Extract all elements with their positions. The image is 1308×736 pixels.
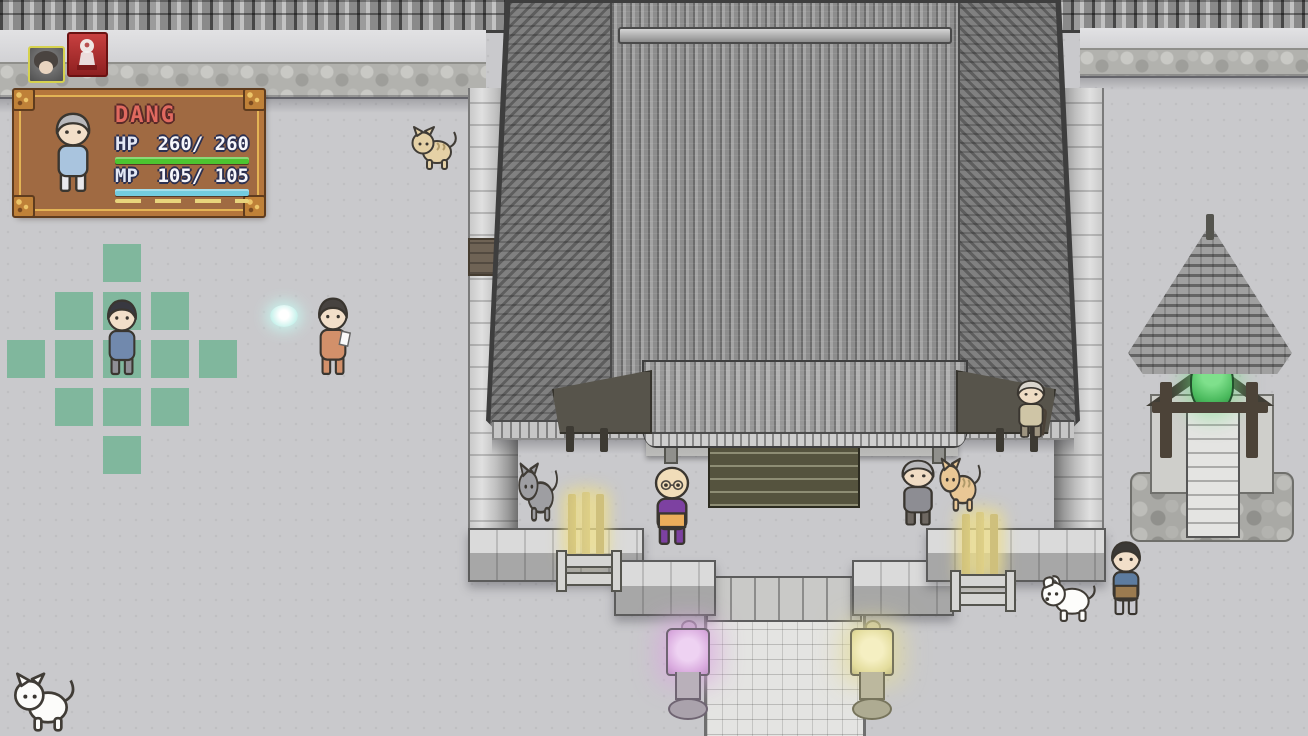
tp-gauge-empty bbox=[115, 199, 249, 203]
hp-bar-track bbox=[115, 157, 249, 164]
temple-entrance-steps[interactable] bbox=[708, 440, 860, 508]
move-tile[interactable] bbox=[55, 340, 93, 378]
incense-rack bbox=[954, 574, 1012, 588]
outer-wall-face-right bbox=[1080, 28, 1308, 48]
move-tile[interactable] bbox=[151, 340, 189, 378]
npc-old-man-cane[interactable] bbox=[1013, 376, 1049, 440]
incense-stick bbox=[976, 512, 984, 576]
cat-tan[interactable] bbox=[410, 119, 458, 171]
mp-value: 105/ 105 bbox=[149, 165, 249, 187]
stone-lantern-yellow[interactable] bbox=[848, 626, 894, 726]
lantern-foot bbox=[668, 698, 708, 720]
lantern-neck bbox=[675, 672, 701, 700]
praying-figure-glyph bbox=[69, 34, 106, 75]
lantern-light bbox=[666, 628, 710, 676]
incense-stick bbox=[582, 492, 590, 556]
move-tile[interactable] bbox=[103, 388, 141, 426]
panel-corner bbox=[12, 88, 35, 111]
mp-bar-track bbox=[115, 189, 249, 196]
portrait-face bbox=[39, 61, 53, 74]
temple-roof-ridge bbox=[618, 27, 952, 44]
incense-stick bbox=[990, 514, 998, 576]
incense-rack bbox=[954, 592, 1012, 606]
game-viewport: DANG HP 260/ 260 MP 105/ 105 bbox=[0, 0, 1308, 736]
lantern-neck bbox=[859, 672, 885, 700]
npc-old-woman[interactable] bbox=[897, 455, 939, 528]
move-tile[interactable] bbox=[7, 340, 45, 378]
temple-lower-roof bbox=[642, 360, 968, 448]
lantern-foot bbox=[852, 698, 892, 720]
bell-tower[interactable] bbox=[1128, 226, 1292, 542]
actor-name: DANG bbox=[115, 103, 176, 128]
incense-rack-post bbox=[950, 570, 961, 612]
player-character[interactable] bbox=[103, 294, 141, 378]
incense-stand-left[interactable] bbox=[560, 494, 618, 590]
incense-rack-post bbox=[556, 550, 567, 592]
wing-post-left-a bbox=[566, 426, 574, 452]
lantern-light bbox=[850, 628, 894, 676]
gate-steps[interactable] bbox=[706, 576, 862, 622]
wall-shadow-right bbox=[1080, 74, 1308, 90]
move-tile[interactable] bbox=[103, 244, 141, 282]
move-tile[interactable] bbox=[55, 292, 93, 330]
incense-stick bbox=[568, 494, 576, 556]
incense-rack bbox=[560, 572, 618, 586]
player-portrait-icon[interactable] bbox=[28, 46, 65, 83]
move-tile[interactable] bbox=[199, 340, 237, 378]
incense-stick bbox=[596, 494, 604, 556]
incense-stand-right[interactable] bbox=[954, 514, 1012, 610]
panel-corner bbox=[243, 88, 266, 111]
dog-white[interactable] bbox=[1040, 568, 1098, 622]
stone-lantern-purple[interactable] bbox=[664, 626, 710, 726]
bell-tower-roof bbox=[1128, 224, 1292, 374]
move-tile[interactable] bbox=[55, 388, 93, 426]
hud: DANG HP 260/ 260 MP 105/ 105 bbox=[0, 0, 300, 240]
incense-rack-post bbox=[611, 550, 622, 592]
bell-tower-steps[interactable] bbox=[1186, 410, 1240, 538]
incense-rack bbox=[560, 554, 618, 568]
temple-roof-hip-left bbox=[490, 3, 618, 432]
cat-white[interactable] bbox=[12, 663, 76, 733]
wing-post-right-b bbox=[996, 428, 1004, 452]
spirit-orb[interactable] bbox=[270, 305, 298, 327]
move-tile[interactable] bbox=[103, 436, 141, 474]
status-panel: DANG HP 260/ 260 MP 105/ 105 bbox=[14, 90, 264, 216]
front-wall-left-inner bbox=[614, 560, 716, 616]
hp-value: 260/ 260 bbox=[149, 133, 249, 155]
bell-tower-beam bbox=[1152, 402, 1268, 413]
npc-paper-visitor[interactable] bbox=[314, 292, 352, 378]
incense-stick bbox=[962, 514, 970, 576]
hp-bar-fill bbox=[115, 157, 249, 164]
bell-tower-post-left bbox=[1160, 382, 1172, 458]
mp-bar-fill bbox=[115, 189, 249, 196]
entrance-brick-path[interactable] bbox=[704, 614, 866, 736]
hp-label: HP bbox=[115, 133, 138, 155]
bell-tower-post-right bbox=[1246, 382, 1258, 458]
move-tile[interactable] bbox=[151, 292, 189, 330]
cat-gray[interactable] bbox=[517, 453, 559, 523]
spirit-marker-icon[interactable] bbox=[67, 32, 108, 77]
mp-label: MP bbox=[115, 165, 138, 187]
wing-post-left-b bbox=[600, 428, 608, 452]
incense-rack-post bbox=[1005, 570, 1016, 612]
move-tile[interactable] bbox=[151, 388, 189, 426]
panel-actor-sprite bbox=[51, 107, 95, 195]
panel-corner bbox=[12, 195, 35, 218]
npc-monk[interactable] bbox=[650, 460, 694, 548]
cat-orange[interactable] bbox=[938, 449, 982, 513]
npc-suit-man[interactable] bbox=[1107, 536, 1145, 618]
bell-tower-finial bbox=[1206, 214, 1214, 240]
